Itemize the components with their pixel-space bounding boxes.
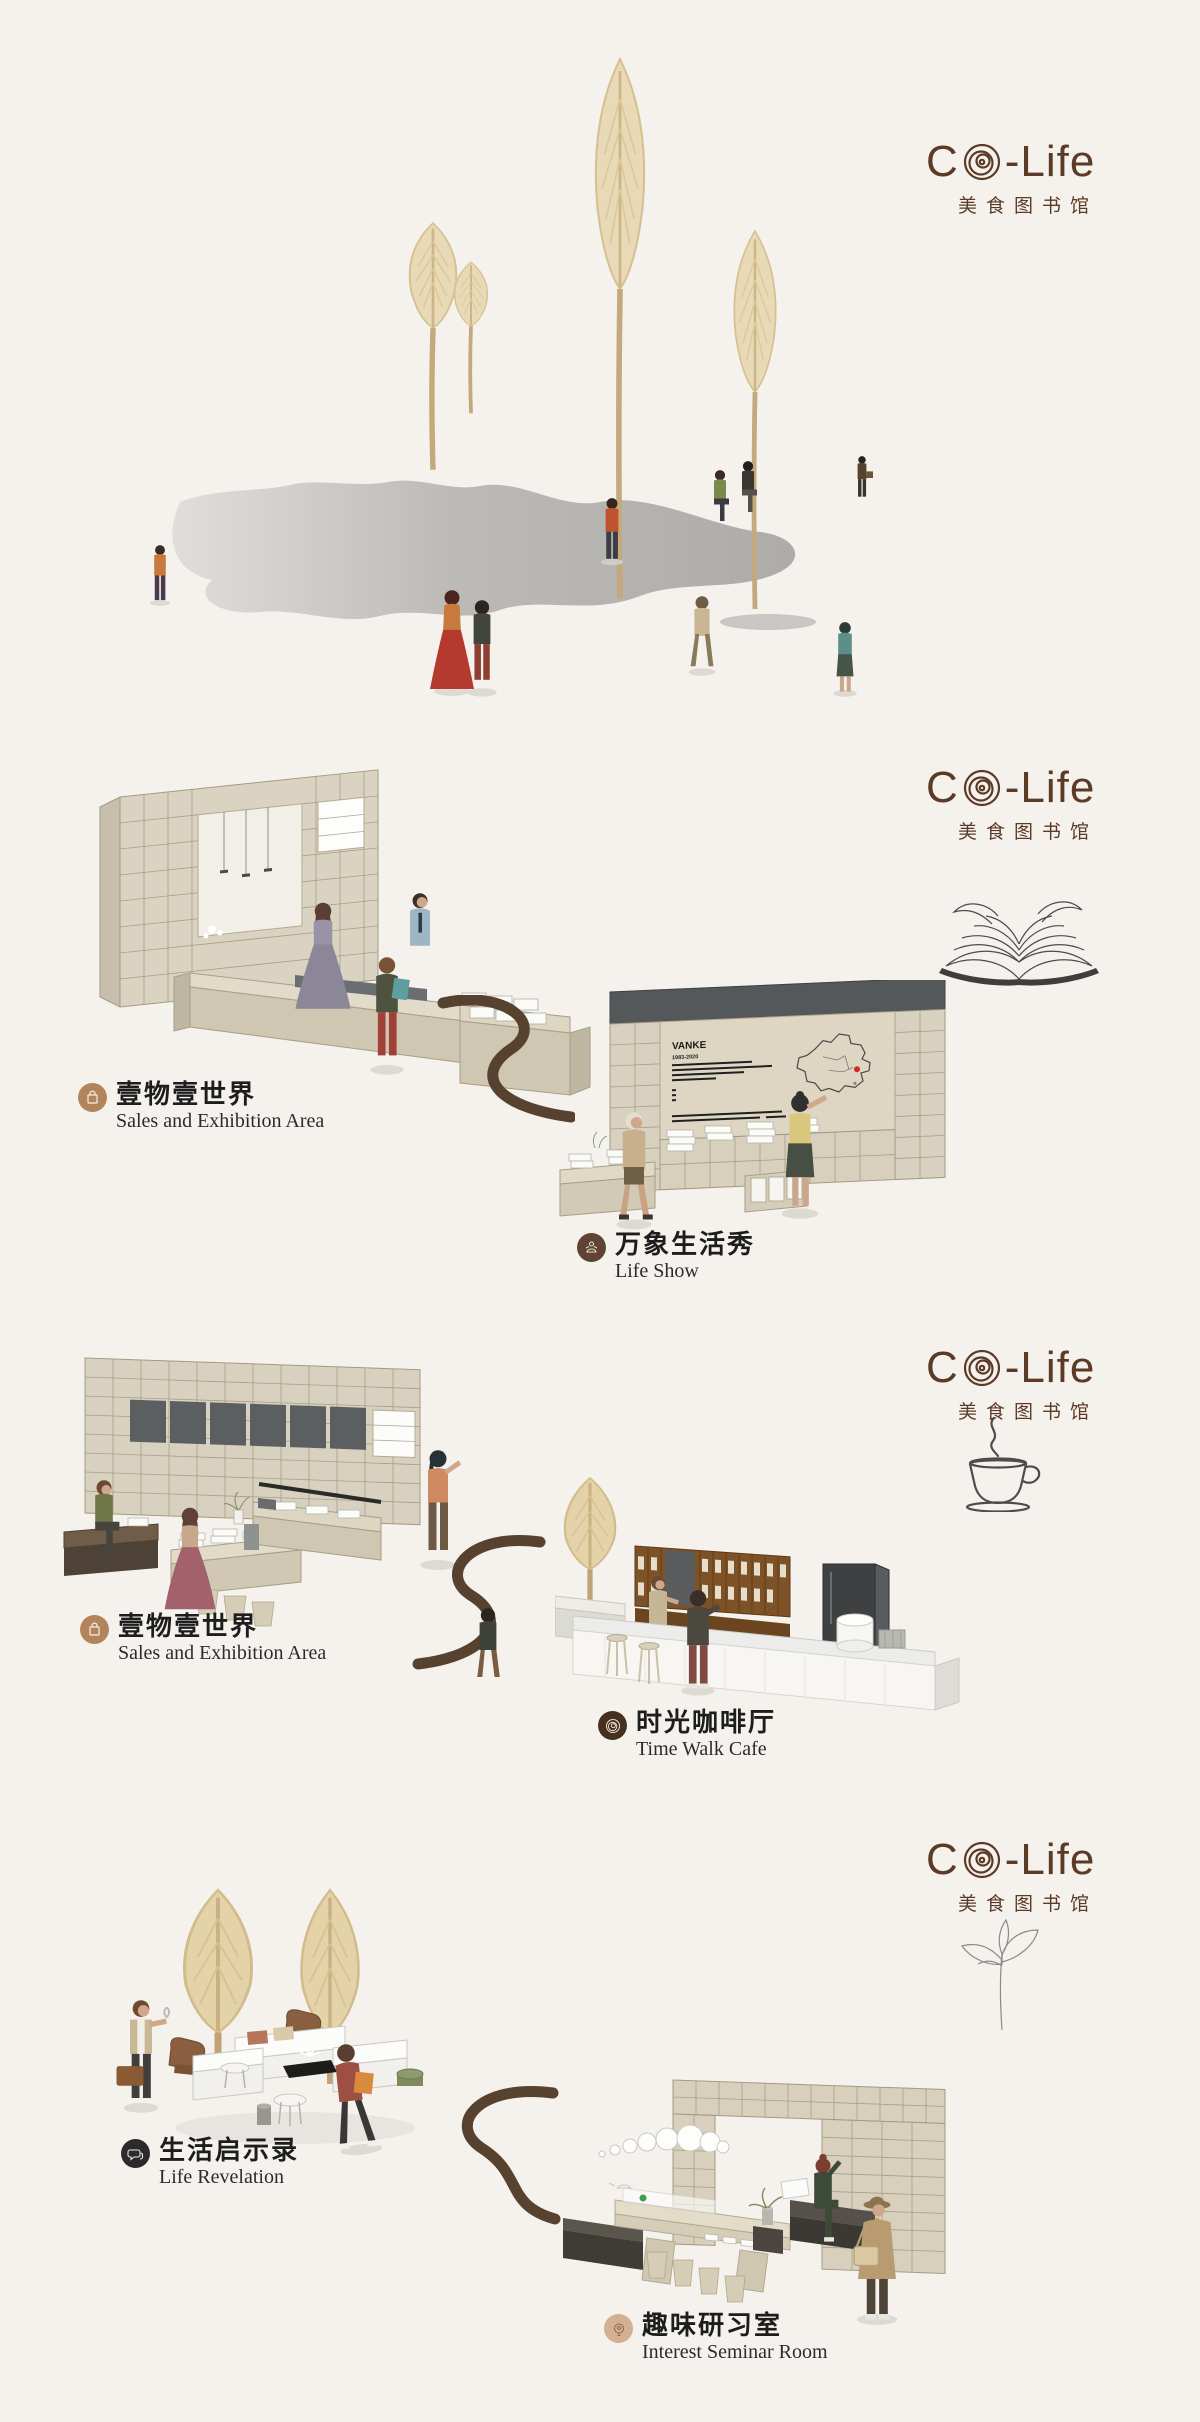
person-sitting — [714, 470, 729, 521]
scene-time-walk-cafe — [555, 1468, 1015, 1723]
scene-entrance-plaza — [120, 40, 900, 700]
logo-prefix: C — [926, 766, 959, 810]
area-label-zh: 时光咖啡厅 — [636, 1708, 776, 1738]
logo-spiral-o-icon — [962, 1348, 1002, 1388]
pampas-tree — [565, 1478, 615, 1600]
display-panel: VANKE 1983-2020 — [660, 1012, 895, 1140]
shopping-bag-icon — [80, 1615, 109, 1644]
person — [689, 596, 716, 676]
colife-logo: C -Life 美食图书馆 — [926, 1838, 1098, 1916]
area-label-en: Life Revelation — [159, 2166, 299, 2189]
label-interest-seminar-room: 趣味研习室 Interest Seminar Room — [604, 2311, 828, 2364]
logo-prefix: C — [926, 1346, 959, 1390]
area-label-en: Sales and Exhibition Area — [118, 1642, 326, 1665]
coffee-swirl-icon — [598, 1711, 627, 1740]
logo-subtitle: 美食图书馆 — [958, 191, 1098, 218]
area-label-zh: 壹物壹世界 — [118, 1612, 326, 1642]
logo-suffix: -Life — [1005, 1346, 1096, 1390]
panel-subtitle: 1983-2020 — [672, 1054, 698, 1061]
person — [150, 545, 170, 606]
label-life-show: 万象生活秀 Life Show — [577, 1230, 755, 1283]
poster-canvas: C -Life 美食图书馆 C -Life 美食图书馆 — [0, 0, 1200, 2422]
sofa-cluster — [193, 2026, 407, 2100]
colife-logo: C -Life 美食图书馆 — [926, 140, 1098, 218]
sprout-icon — [944, 1918, 1059, 2033]
pouf — [397, 2069, 423, 2086]
tree-shadow — [720, 614, 816, 630]
area-label-en: Sales and Exhibition Area — [116, 1110, 324, 1133]
logo-suffix: -Life — [1005, 1838, 1096, 1882]
logo-spiral-o-icon — [962, 1840, 1002, 1880]
area-label-zh: 趣味研习室 — [642, 2311, 828, 2341]
colife-logo: C -Life 美食图书馆 — [926, 766, 1098, 844]
area-label-zh: 万象生活秀 — [615, 1230, 755, 1260]
winding-path — [408, 1532, 558, 1677]
logo-suffix: -Life — [1005, 140, 1096, 184]
stools — [647, 2252, 745, 2302]
bookshelf-wall — [673, 2080, 945, 2273]
logo-subtitle: 美食图书馆 — [958, 817, 1098, 844]
open-book-icon — [932, 882, 1107, 987]
area-label-en: Life Show — [615, 1260, 755, 1283]
person — [117, 2000, 170, 2112]
person — [410, 893, 430, 946]
area-label-en: Time Walk Cafe — [636, 1738, 776, 1761]
panel-title: VANKE — [672, 1040, 707, 1053]
area-label-zh: 生活启示录 — [159, 2136, 299, 2166]
waste-bin — [257, 2103, 271, 2125]
shopping-bag-icon — [78, 1083, 107, 1112]
logo-prefix: C — [926, 140, 959, 184]
pampas-tree — [410, 223, 456, 470]
label-sales-exhibition-b: 壹物壹世界 Sales and Exhibition Area — [80, 1612, 326, 1665]
label-time-walk-cafe: 时光咖啡厅 Time Walk Cafe — [598, 1708, 776, 1761]
logo-spiral-o-icon — [962, 142, 1002, 182]
area-label-zh: 壹物壹世界 — [116, 1080, 324, 1110]
label-sales-exhibition-a: 壹物壹世界 Sales and Exhibition Area — [78, 1080, 324, 1133]
logo-subtitle: 美食图书馆 — [958, 1889, 1098, 1916]
logo-spiral-o-icon — [962, 768, 1002, 808]
pampas-tree — [455, 262, 488, 413]
winding-path — [425, 995, 575, 1125]
doodle-icon — [604, 2314, 633, 2343]
logo-prefix: C — [926, 1838, 959, 1882]
label-life-revelation: 生活启示录 Life Revelation — [121, 2136, 299, 2189]
person — [858, 456, 873, 497]
area-label-en: Interest Seminar Room — [642, 2341, 828, 2364]
figure-icon — [577, 1233, 606, 1262]
speech-bubbles-icon — [121, 2139, 150, 2168]
bookshelf-wall: VANKE 1983-2020 — [610, 980, 945, 1192]
winding-path — [415, 2085, 565, 2225]
person — [833, 622, 857, 697]
logo-suffix: -Life — [1005, 766, 1096, 810]
person — [476, 1608, 500, 1677]
coffee-machine — [837, 1614, 905, 1652]
scene-life-show: VANKE 1983-2020 — [555, 980, 960, 1235]
